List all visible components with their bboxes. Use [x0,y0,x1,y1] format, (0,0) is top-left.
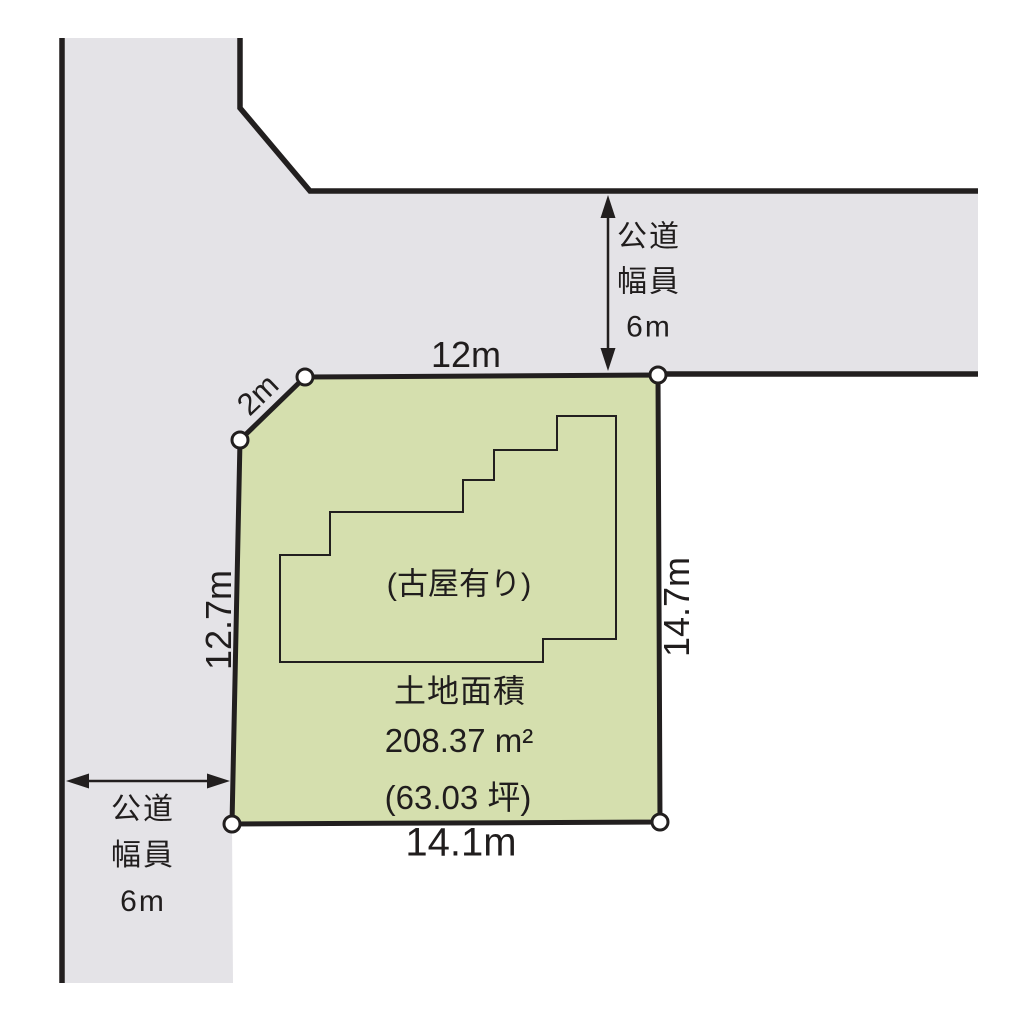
road-note-top-line2: 幅員 [617,260,681,305]
dimension-bottom: 14.1m [405,821,516,866]
road-note-top-line1: 公道 [617,215,681,260]
vertex-marker-left-cut [232,432,248,448]
area-tsubo: (63.03 坪) [385,771,532,819]
vertex-marker-top-right [650,367,666,383]
dimension-left: 12.7m [198,570,240,670]
road-edge-top [240,38,978,191]
road-note-left-line3: 6m [111,879,175,925]
road-note-left-line1: 公道 [111,787,175,833]
dimension-right: 14.7m [656,557,698,657]
building-note: (古屋有り) [387,559,532,604]
area-square-meters: 208.37 m² [385,722,534,760]
road-width-note-top: 公道 幅員 6m [617,215,681,350]
vertex-marker-top-cut [297,369,313,385]
road-width-note-left: 公道 幅員 6m [111,787,175,925]
road-note-top-line3: 6m [617,305,681,350]
area-title: 土地面積 [394,666,526,712]
road-note-left-line2: 幅員 [111,833,175,879]
vertex-marker-bottom-right [652,814,668,830]
vertex-marker-bottom-left [224,816,240,832]
dimension-top: 12m [431,334,501,376]
land-plot-diagram: 公道 幅員 6m 公道 幅員 6m 12m 2m 12.7m 14.7m 14.… [0,0,1010,1024]
